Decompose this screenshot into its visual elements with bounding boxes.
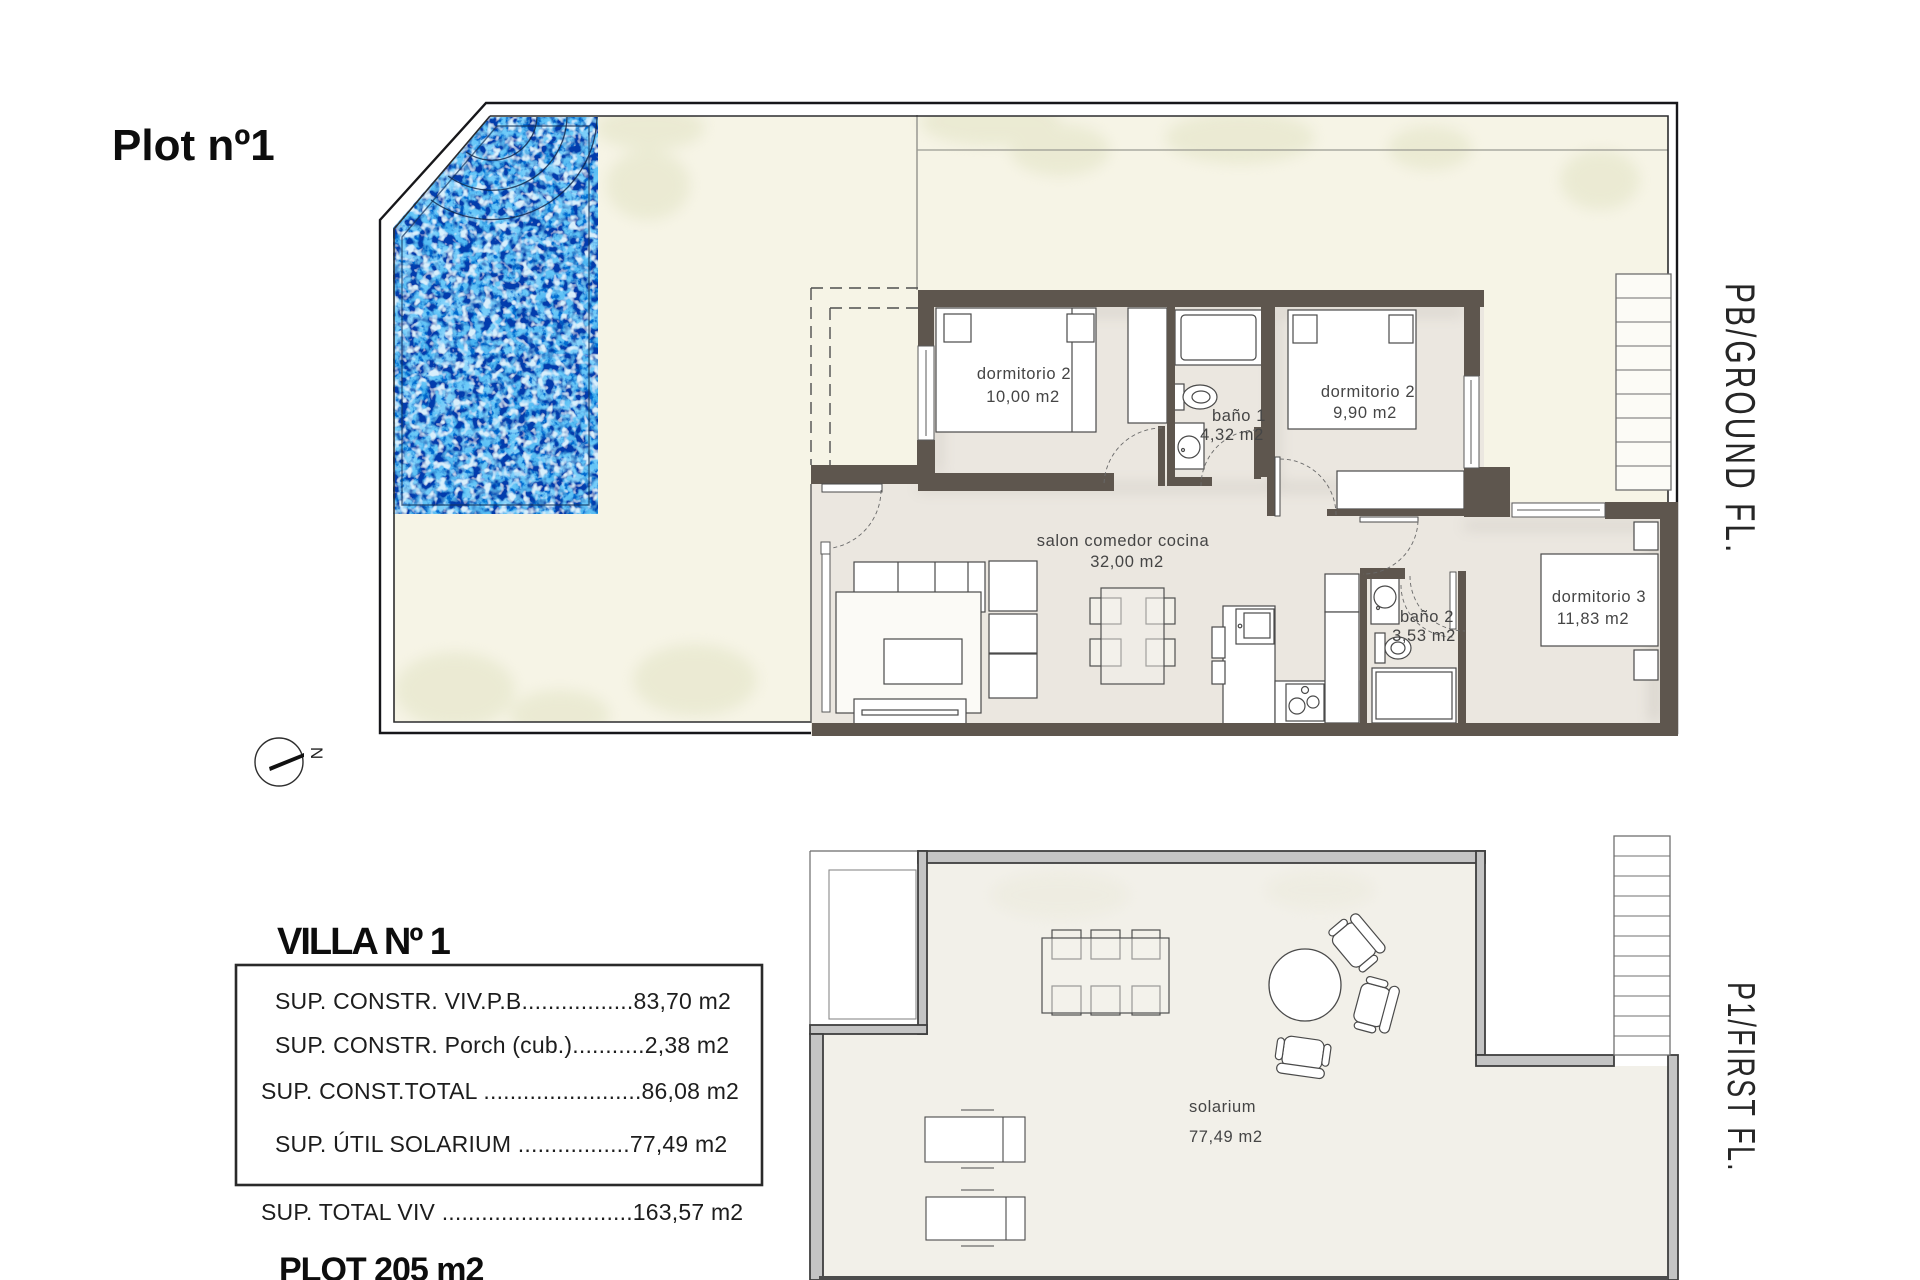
svg-text:P1/FIRST FL.: P1/FIRST FL. (1719, 982, 1762, 1173)
svg-text:baño 1: baño 1 (1212, 407, 1266, 425)
svg-text:solarium: solarium (1189, 1098, 1256, 1116)
svg-text:77,49 m2: 77,49 m2 (1189, 1128, 1263, 1146)
svg-text:3,53 m2: 3,53 m2 (1392, 627, 1456, 645)
svg-text:10,00 m2: 10,00 m2 (986, 388, 1060, 406)
svg-text:SUP. CONST.TOTAL .............: SUP. CONST.TOTAL .......................… (261, 1078, 739, 1104)
svg-text:32,00 m2: 32,00 m2 (1090, 553, 1164, 571)
svg-text:11,83 m2: 11,83 m2 (1557, 610, 1629, 628)
svg-text:dormitorio 2: dormitorio 2 (977, 365, 1071, 383)
svg-text:4,32 m2: 4,32 m2 (1200, 426, 1264, 444)
svg-text:9,90 m2: 9,90 m2 (1333, 404, 1397, 422)
svg-text:SUP. ÚTIL SOLARIUM ...........: SUP. ÚTIL SOLARIUM .................77,4… (275, 1131, 727, 1157)
svg-text:baño 2: baño 2 (1400, 608, 1454, 626)
svg-text:salon comedor cocina: salon comedor cocina (1037, 532, 1210, 550)
svg-text:SUP. TOTAL VIV ...............: SUP. TOTAL VIV .........................… (261, 1199, 743, 1225)
svg-text:VILLA Nº 1: VILLA Nº 1 (277, 921, 451, 963)
svg-text:dormitorio 3: dormitorio 3 (1552, 588, 1646, 606)
svg-text:Plot nº1: Plot nº1 (112, 121, 275, 170)
svg-text:dormitorio 2: dormitorio 2 (1321, 383, 1415, 401)
svg-text:PLOT 205 m2: PLOT 205 m2 (279, 1251, 484, 1280)
svg-text:PB/GROUND FL.: PB/GROUND FL. (1717, 283, 1764, 555)
svg-text:SUP. CONSTR. VIV.P.B..........: SUP. CONSTR. VIV.P.B.................83,… (275, 988, 731, 1014)
svg-text:SUP. CONSTR. Porch (cub.).....: SUP. CONSTR. Porch (cub.)...........2,38… (275, 1032, 729, 1058)
svg-text:N: N (307, 747, 326, 759)
